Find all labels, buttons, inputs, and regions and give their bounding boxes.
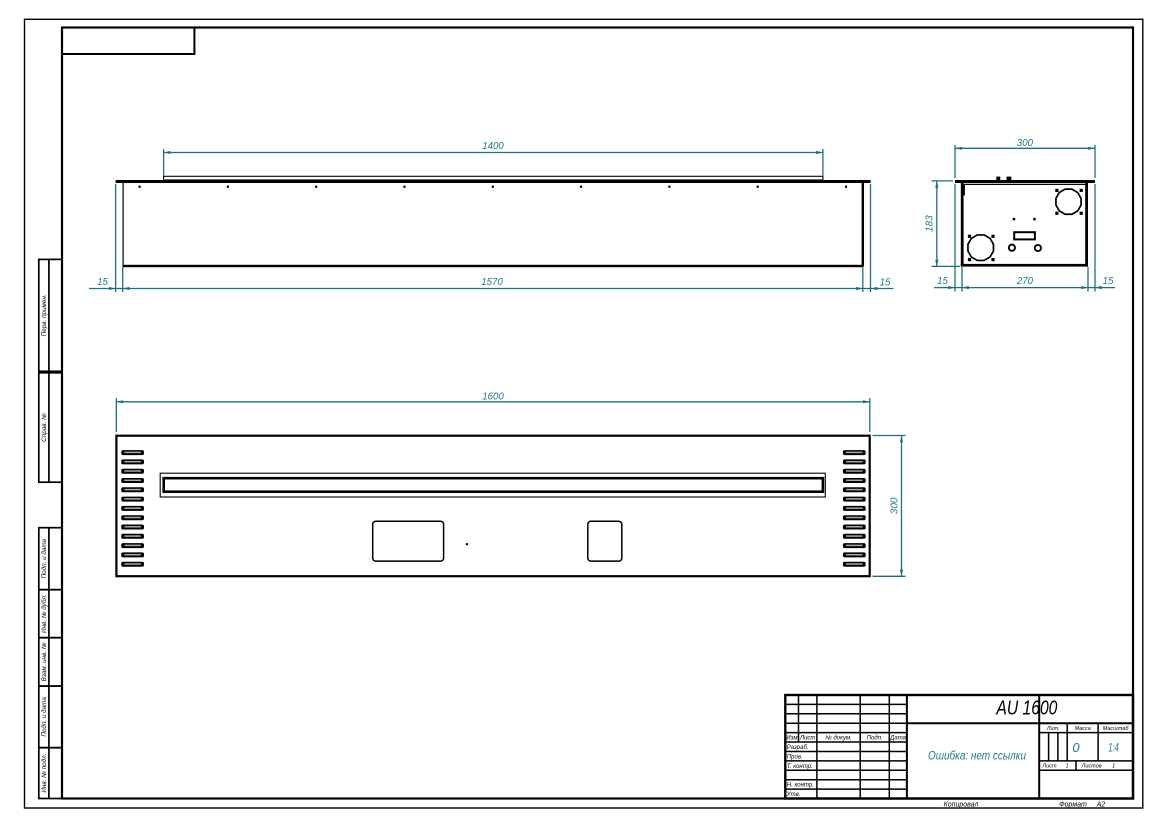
svg-text:Масштаб: Масштаб	[1103, 726, 1130, 732]
svg-text:Пров.: Пров.	[787, 754, 803, 760]
svg-text:Копировал: Копировал	[944, 802, 979, 809]
svg-text:300: 300	[889, 497, 900, 514]
svg-text:Дата: Дата	[889, 736, 906, 742]
svg-text:Справ. №: Справ. №	[41, 413, 48, 442]
svg-text:AU 1600: AU 1600	[996, 698, 1058, 720]
svg-text:300: 300	[1017, 138, 1034, 149]
svg-text:1: 1	[1112, 764, 1115, 770]
svg-text:Утв.: Утв.	[786, 792, 801, 798]
svg-text:Взам. инв. №: Взам. инв. №	[41, 642, 48, 681]
svg-text:Лист: Лист	[799, 736, 815, 742]
svg-text:1:4: 1:4	[1108, 741, 1119, 755]
svg-text:0: 0	[1072, 740, 1080, 755]
svg-text:Листов: Листов	[1081, 764, 1102, 770]
svg-text:15: 15	[1103, 276, 1114, 287]
svg-text:1570: 1570	[481, 277, 503, 288]
svg-text:Т. контр.: Т. контр.	[787, 764, 813, 770]
svg-text:А2: А2	[1096, 802, 1106, 809]
svg-text:1600: 1600	[482, 391, 504, 402]
svg-text:Н. контр.: Н. контр.	[787, 783, 814, 789]
svg-text:Масса: Масса	[1075, 726, 1091, 732]
svg-text:Перв. примен.: Перв. примен.	[41, 294, 48, 336]
svg-text:№ докум.: № докум.	[825, 735, 851, 742]
svg-text:15: 15	[937, 276, 948, 287]
svg-text:Подп.: Подп.	[867, 736, 883, 742]
svg-text:1: 1	[1065, 764, 1068, 770]
svg-text:Разраб.: Разраб.	[787, 745, 809, 751]
svg-text:Ошибка: нет ссылки: Ошибка: нет ссылки	[928, 749, 1026, 763]
svg-text:183: 183	[924, 215, 935, 232]
svg-text:15: 15	[880, 277, 891, 288]
svg-text:270: 270	[1016, 276, 1034, 287]
svg-text:1400: 1400	[482, 141, 504, 152]
svg-text:Лит.: Лит.	[1046, 726, 1060, 732]
svg-text:Инв. № дубл.: Инв. № дубл.	[40, 594, 48, 633]
svg-text:15: 15	[97, 277, 108, 288]
svg-text:Формат: Формат	[1059, 802, 1087, 809]
svg-text:Инв. № подл.: Инв. № подл.	[40, 754, 48, 793]
svg-text:Лист: Лист	[1041, 764, 1057, 770]
svg-text:Подп. и дата: Подп. и дата	[40, 538, 48, 578]
svg-text:Подп. и дата: Подп. и дата	[40, 697, 48, 737]
svg-text:Изм: Изм	[786, 736, 797, 742]
